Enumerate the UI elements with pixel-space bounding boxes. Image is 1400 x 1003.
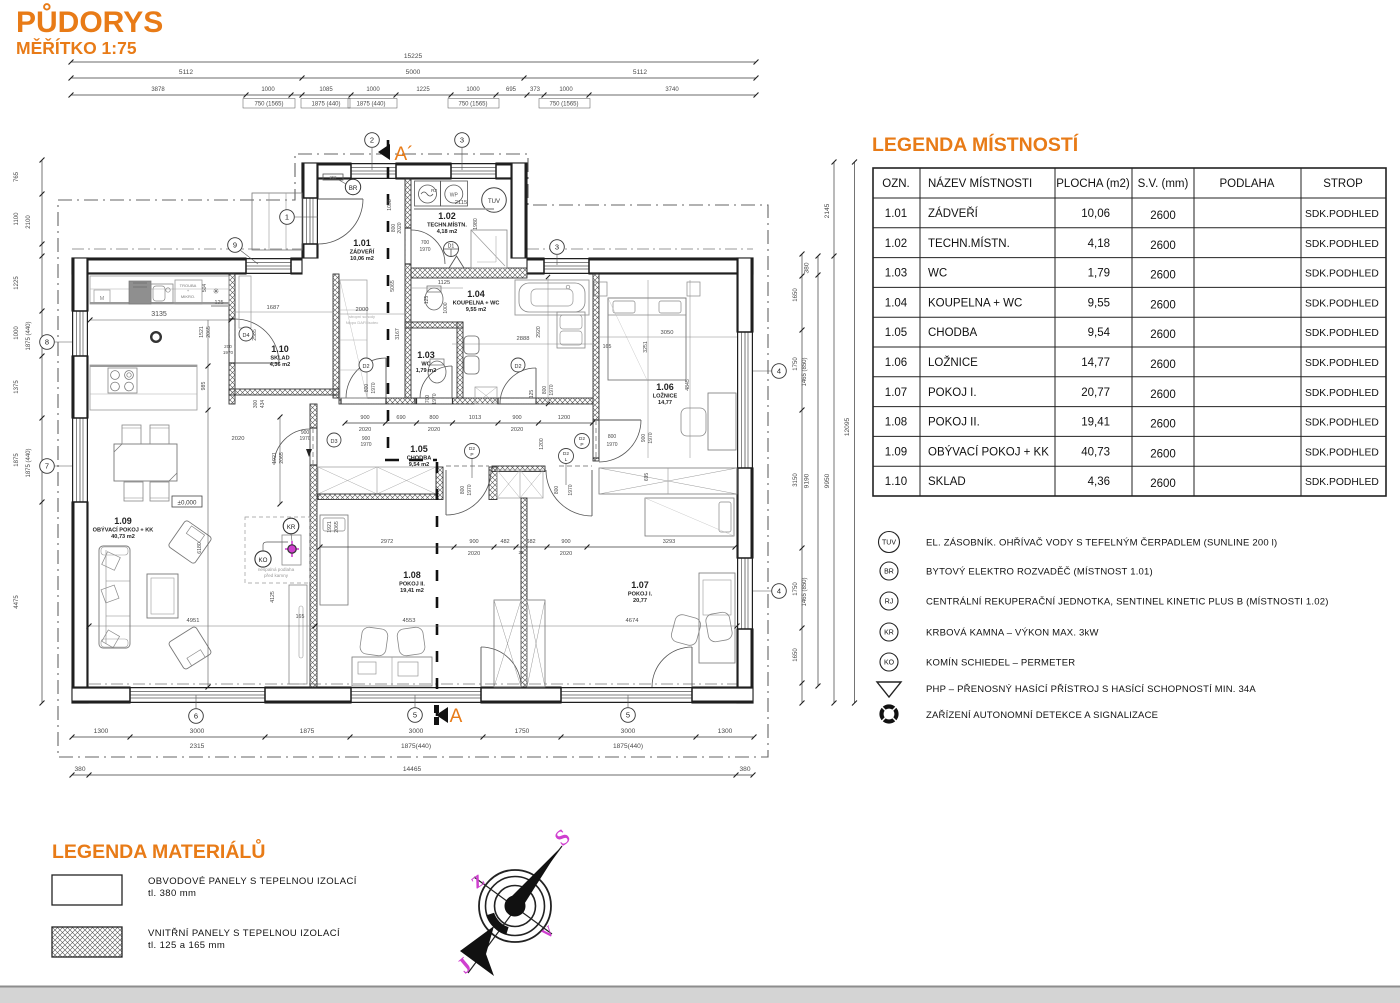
svg-text:PLOCHA (m2): PLOCHA (m2) [1056, 178, 1130, 190]
svg-text:1.10: 1.10 [271, 344, 289, 354]
svg-text:tl. 380 mm: tl. 380 mm [148, 888, 196, 899]
svg-text:SDK.PODHLED: SDK.PODHLED [1305, 328, 1379, 339]
svg-text:19,41 m2: 19,41 m2 [400, 588, 424, 594]
svg-text:3: 3 [460, 136, 464, 145]
svg-text:SDK.PODHLED: SDK.PODHLED [1305, 388, 1379, 399]
svg-text:800: 800 [460, 486, 466, 495]
svg-text:1000: 1000 [366, 87, 380, 93]
svg-text:1.05: 1.05 [410, 444, 428, 454]
svg-text:PŮDORYS: PŮDORYS [16, 3, 163, 39]
svg-text:1465 (850): 1465 (850) [802, 577, 808, 606]
svg-text:5065: 5065 [390, 280, 396, 292]
svg-text:800: 800 [429, 415, 438, 421]
svg-text:4: 4 [777, 587, 781, 596]
svg-text:2600: 2600 [1150, 240, 1176, 252]
svg-text:1970: 1970 [549, 384, 555, 395]
svg-text:9190: 9190 [804, 473, 811, 488]
svg-text:125: 125 [529, 390, 535, 399]
svg-text:2145: 2145 [824, 203, 831, 218]
svg-text:1465 (850): 1465 (850) [802, 357, 808, 386]
svg-text:6: 6 [194, 712, 198, 721]
svg-text:19,41: 19,41 [1081, 417, 1110, 429]
svg-text:✳: ✳ [213, 287, 220, 296]
svg-text:2020: 2020 [232, 436, 245, 442]
svg-text:1300: 1300 [718, 728, 733, 735]
svg-text:4,36 m2: 4,36 m2 [270, 362, 291, 368]
svg-text:NÁZEV MÍSTNOSTI: NÁZEV MÍSTNOSTI [928, 177, 1032, 190]
svg-text:KO: KO [259, 557, 268, 564]
svg-text:1,79: 1,79 [1088, 268, 1110, 280]
svg-text:před kamny: před kamny [264, 573, 289, 578]
svg-text:1750: 1750 [793, 582, 799, 596]
svg-text:L: L [565, 457, 568, 463]
svg-text:700: 700 [421, 240, 430, 246]
svg-text:1125: 1125 [438, 280, 450, 286]
svg-text:4,36: 4,36 [1088, 476, 1110, 488]
svg-text:ZÁDVEŘÍ: ZÁDVEŘÍ [928, 207, 979, 220]
svg-text:1.06: 1.06 [656, 382, 674, 392]
svg-text:9950: 9950 [824, 473, 831, 488]
svg-text:1: 1 [285, 213, 289, 222]
svg-text:D3: D3 [330, 439, 337, 445]
svg-text:1000: 1000 [559, 87, 573, 93]
svg-text:MĚŘÍTKO 1:75: MĚŘÍTKO 1:75 [16, 37, 137, 58]
svg-text:2115: 2115 [455, 200, 467, 206]
svg-text:1375: 1375 [14, 380, 20, 394]
svg-text:LOŽNICE: LOŽNICE [653, 392, 678, 400]
svg-text:10,06 m2: 10,06 m2 [350, 256, 374, 262]
svg-text:165: 165 [296, 614, 305, 620]
svg-text:2920: 2920 [536, 326, 542, 338]
svg-text:800: 800 [364, 384, 370, 393]
svg-text:KOUPELNA + WC: KOUPELNA + WC [928, 297, 1022, 309]
svg-text:2600: 2600 [1150, 448, 1176, 460]
svg-text:4: 4 [777, 367, 781, 376]
svg-text:RJ: RJ [885, 599, 894, 606]
svg-text:682: 682 [526, 539, 535, 545]
svg-text:STROP: STROP [1323, 178, 1363, 190]
svg-text:9: 9 [233, 241, 237, 250]
svg-text:A´: A´ [395, 144, 414, 165]
svg-text:900: 900 [561, 539, 570, 545]
svg-text:1970: 1970 [467, 484, 473, 495]
svg-text:10,06: 10,06 [1081, 208, 1110, 220]
svg-text:25: 25 [518, 550, 524, 555]
svg-text:1970: 1970 [360, 442, 371, 448]
svg-text:1875 (440): 1875 (440) [356, 102, 385, 108]
svg-text:1970: 1970 [648, 432, 654, 443]
svg-text:POKOJ I.: POKOJ I. [928, 387, 977, 399]
svg-text:S.V. (mm): S.V. (mm) [1138, 178, 1189, 190]
svg-text:TECHN.MÍSTN.: TECHN.MÍSTN. [427, 221, 467, 229]
svg-text:9,54: 9,54 [1088, 327, 1111, 339]
svg-text:1225: 1225 [14, 276, 20, 290]
svg-text:2600: 2600 [1150, 270, 1176, 282]
svg-text:1.03: 1.03 [885, 268, 907, 280]
svg-text:2600: 2600 [1150, 299, 1176, 311]
svg-text:CHODBA: CHODBA [407, 456, 432, 462]
svg-text:SKLAD: SKLAD [928, 476, 966, 488]
svg-text:2600: 2600 [1150, 389, 1176, 401]
svg-text:2000: 2000 [356, 307, 369, 313]
svg-text:14,77: 14,77 [658, 400, 672, 406]
svg-text:BYTOVÝ ELEKTRO ROZVADĚČ (MÍSTN: BYTOVÝ ELEKTRO ROZVADĚČ (MÍSTNOST 1.01) [926, 567, 1153, 578]
svg-text:690: 690 [396, 415, 405, 421]
svg-text:1100: 1100 [14, 212, 20, 226]
svg-text:1970: 1970 [371, 382, 377, 393]
svg-text:1875 (440): 1875 (440) [26, 321, 32, 350]
svg-text:380: 380 [804, 262, 811, 273]
svg-text:1200: 1200 [558, 415, 570, 421]
svg-text:3150: 3150 [793, 473, 799, 487]
svg-text:1.02: 1.02 [885, 238, 907, 250]
svg-text:CENTRÁLNÍ REKUPERAČNÍ JEDNOTKA: CENTRÁLNÍ REKUPERAČNÍ JEDNOTKA, SENTINEL… [926, 597, 1329, 608]
svg-text:5000: 5000 [406, 69, 421, 76]
svg-text:ZÁDVEŘÍ: ZÁDVEŘÍ [350, 248, 375, 256]
svg-text:1970: 1970 [223, 350, 234, 355]
svg-text:TUV: TUV [882, 540, 896, 547]
svg-text:3135: 3135 [151, 311, 167, 318]
svg-text:380: 380 [739, 766, 750, 773]
svg-text:D2: D2 [579, 436, 585, 442]
svg-text:1875(440): 1875(440) [401, 743, 431, 750]
svg-text:2065: 2065 [334, 521, 340, 533]
svg-text:165: 165 [603, 344, 612, 350]
svg-text:2020: 2020 [468, 551, 480, 557]
svg-text:1.09: 1.09 [114, 516, 132, 526]
svg-text:WC: WC [928, 268, 947, 280]
svg-text:2600: 2600 [1150, 359, 1176, 371]
svg-text:250: 250 [330, 175, 338, 180]
svg-text:1013: 1013 [469, 415, 481, 421]
svg-text:2020: 2020 [511, 427, 523, 433]
svg-text:14,77: 14,77 [1081, 357, 1110, 369]
svg-text:750 (1565): 750 (1565) [254, 102, 283, 108]
svg-text:4553: 4553 [403, 618, 416, 624]
svg-text:15225: 15225 [404, 53, 423, 60]
svg-text:OZN.: OZN. [882, 178, 909, 190]
svg-text:20,77: 20,77 [633, 598, 647, 604]
svg-text:1085: 1085 [319, 87, 333, 93]
svg-text:1970: 1970 [299, 436, 310, 442]
svg-text:373: 373 [530, 87, 541, 93]
svg-text:2065: 2065 [279, 452, 285, 464]
svg-text:1098: 1098 [387, 199, 393, 211]
svg-text:1970: 1970 [432, 393, 438, 404]
svg-text:OBÝVACÍ POKOJ + KK: OBÝVACÍ POKOJ + KK [928, 445, 1049, 458]
svg-text:1650: 1650 [793, 288, 799, 302]
svg-text:CHODBA: CHODBA [928, 327, 978, 339]
svg-text:2020: 2020 [397, 222, 403, 233]
svg-text:3293: 3293 [663, 539, 675, 545]
svg-text:KRBOVÁ KAMNA – VÝKON MAX. 3kW: KRBOVÁ KAMNA – VÝKON MAX. 3kW [926, 628, 1099, 639]
svg-text:1.08: 1.08 [885, 417, 907, 429]
svg-text:2065: 2065 [206, 326, 212, 338]
svg-text:695: 695 [644, 473, 650, 482]
svg-text:4475: 4475 [14, 595, 20, 609]
svg-text:SDK.PODHLED: SDK.PODHLED [1305, 477, 1379, 488]
svg-text:1.09: 1.09 [885, 446, 907, 458]
svg-text:900: 900 [469, 539, 478, 545]
svg-text:OBÝVACÍ POKOJ + KK: OBÝVACÍ POKOJ + KK [93, 526, 154, 534]
svg-text:P: P [580, 442, 583, 448]
svg-text:D1: D1 [448, 244, 455, 250]
svg-text:POKOJ II.: POKOJ II. [399, 582, 425, 588]
svg-text:482: 482 [500, 539, 509, 545]
svg-text:3000: 3000 [409, 728, 424, 735]
svg-text:KR: KR [884, 630, 894, 637]
svg-text:1875(440): 1875(440) [613, 743, 643, 750]
svg-text:1.04: 1.04 [467, 289, 485, 299]
svg-text:RJ: RJ [431, 188, 437, 194]
svg-text:695: 695 [506, 87, 517, 93]
svg-text:1300: 1300 [94, 728, 109, 735]
svg-text:40,73: 40,73 [1081, 446, 1110, 458]
svg-text:434: 434 [260, 400, 266, 409]
svg-text:800: 800 [608, 434, 617, 440]
svg-text:TUV: TUV [488, 199, 500, 205]
svg-text:1.06: 1.06 [885, 357, 907, 369]
svg-text:2600: 2600 [1150, 329, 1176, 341]
svg-text:WP: WP [450, 193, 459, 199]
svg-text:1000: 1000 [466, 87, 480, 93]
svg-text:504: 504 [202, 284, 208, 293]
svg-text:1921: 1921 [327, 521, 333, 533]
svg-text:KOMÍN SCHIEDEL – PERMETER: KOMÍN SCHIEDEL – PERMETER [926, 658, 1075, 669]
svg-text:POKOJ II.: POKOJ II. [928, 417, 980, 429]
svg-text:750 (1565): 750 (1565) [458, 102, 487, 108]
svg-text:1.07: 1.07 [885, 387, 907, 399]
svg-text:stropní schody: stropní schody [349, 314, 375, 319]
svg-text:5: 5 [626, 711, 630, 720]
svg-text:1650: 1650 [793, 648, 799, 662]
svg-text:D2: D2 [362, 364, 369, 370]
svg-text:1200: 1200 [539, 438, 545, 450]
svg-text:SDK.PODHLED: SDK.PODHLED [1305, 269, 1379, 280]
svg-text:nespalná podlaha: nespalná podlaha [258, 567, 295, 572]
svg-text:3050: 3050 [661, 330, 674, 336]
svg-text:1000: 1000 [443, 302, 449, 313]
svg-text:LEGENDA MATERIÁLŮ: LEGENDA MATERIÁLŮ [52, 837, 265, 863]
svg-text:2100: 2100 [26, 215, 32, 229]
svg-text:8: 8 [45, 338, 49, 347]
svg-text:5: 5 [413, 711, 417, 720]
svg-text:SDK.PODHLED: SDK.PODHLED [1305, 418, 1379, 429]
svg-text:KOUPELNA + WC: KOUPELNA + WC [453, 301, 500, 307]
svg-text:5112: 5112 [179, 69, 194, 76]
svg-text:9,54 m2: 9,54 m2 [409, 462, 430, 468]
svg-text:P: P [470, 452, 473, 458]
svg-text:1980: 1980 [473, 218, 479, 230]
svg-text:3167: 3167 [395, 328, 401, 340]
svg-text:700: 700 [425, 395, 431, 404]
svg-text:2600: 2600 [1150, 210, 1176, 222]
svg-text:SDK.PODHLED: SDK.PODHLED [1305, 239, 1379, 250]
svg-text:900: 900 [641, 434, 647, 443]
svg-text:1875: 1875 [300, 728, 315, 735]
svg-text:1000: 1000 [14, 326, 20, 340]
svg-text:765: 765 [14, 171, 20, 182]
svg-text:125: 125 [424, 296, 430, 305]
svg-text:1.02: 1.02 [438, 211, 456, 221]
svg-text:PHP – PŘENOSNÝ HASÍCÍ PŘÍSTROJ: PHP – PŘENOSNÝ HASÍCÍ PŘÍSTROJ S HASÍCÍ … [926, 684, 1256, 695]
svg-text:6180: 6180 [197, 542, 203, 554]
svg-text:12095: 12095 [844, 418, 851, 437]
svg-text:LOŽNICE: LOŽNICE [928, 356, 978, 369]
svg-text:1.04: 1.04 [885, 297, 908, 309]
svg-text:KR: KR [287, 524, 296, 531]
svg-text:1.10: 1.10 [885, 476, 907, 488]
svg-text:A: A [450, 706, 463, 727]
svg-text:VNITŘNÍ PANELY S TEPELNOU IZOL: VNITŘNÍ PANELY S TEPELNOU IZOLACÍ [148, 928, 340, 939]
svg-text:4,18: 4,18 [1088, 238, 1110, 250]
svg-text:2600: 2600 [1150, 478, 1176, 490]
svg-text:985: 985 [201, 382, 207, 391]
svg-text:4951: 4951 [187, 618, 200, 624]
svg-text:1875: 1875 [14, 453, 20, 467]
svg-text:1750: 1750 [793, 357, 799, 371]
svg-text:M: M [100, 296, 105, 302]
svg-text:D2: D2 [514, 364, 521, 370]
svg-text:3000: 3000 [621, 728, 636, 735]
svg-text:4674: 4674 [626, 618, 640, 624]
svg-text:1225: 1225 [416, 87, 430, 93]
svg-text:D4: D4 [242, 333, 249, 339]
svg-text:300: 300 [253, 400, 259, 409]
svg-text:1521: 1521 [199, 326, 205, 338]
svg-text:2020: 2020 [428, 427, 440, 433]
svg-text:D2: D2 [563, 451, 569, 457]
svg-text:EL. ZÁSOBNÍK. OHŘÍVAČ VODY S T: EL. ZÁSOBNÍK. OHŘÍVAČ VODY S TEFELNÝM ČE… [926, 538, 1277, 549]
svg-text:750 (1565): 750 (1565) [549, 102, 578, 108]
svg-text:LEGENDA MÍSTNOSTÍ: LEGENDA MÍSTNOSTÍ [872, 133, 1079, 156]
svg-text:14465: 14465 [403, 766, 422, 773]
svg-text:SDK.PODHLED: SDK.PODHLED [1305, 447, 1379, 458]
svg-text:MIKRO.: MIKRO. [181, 294, 195, 299]
svg-text:1875 (440): 1875 (440) [311, 102, 340, 108]
svg-text:1.01: 1.01 [353, 238, 371, 248]
svg-text:125: 125 [215, 300, 224, 306]
svg-text:SDK.PODHLED: SDK.PODHLED [1305, 358, 1379, 369]
svg-text:380: 380 [74, 766, 85, 773]
svg-text:800: 800 [554, 486, 560, 495]
svg-text:1970: 1970 [606, 442, 617, 448]
svg-text:900: 900 [512, 415, 521, 421]
svg-text:1687: 1687 [267, 305, 280, 311]
svg-text:SDK.PODHLED: SDK.PODHLED [1305, 209, 1379, 220]
svg-text:tl. 125 a 165 mm: tl. 125 a 165 mm [148, 940, 225, 951]
svg-text:3740: 3740 [665, 87, 679, 93]
svg-text:40,73 m2: 40,73 m2 [111, 534, 135, 540]
svg-text:1,79 m2: 1,79 m2 [416, 368, 437, 374]
svg-text:SKLAD: SKLAD [270, 356, 289, 362]
svg-text:3878: 3878 [151, 87, 165, 93]
svg-text:2600: 2600 [1150, 419, 1176, 431]
svg-text:OBVODOVÉ PANELY S TEPELNOU IZO: OBVODOVÉ PANELY S TEPELNOU IZOLACÍ [148, 876, 357, 887]
svg-text:2315: 2315 [190, 743, 205, 750]
svg-text:1.05: 1.05 [885, 327, 907, 339]
svg-text:7: 7 [45, 462, 49, 471]
svg-text:POKOJ I.: POKOJ I. [628, 592, 653, 598]
svg-text:2972: 2972 [381, 539, 393, 545]
svg-text:ZAŘÍZENÍ AUTONOMNÍ DETEKCE A S: ZAŘÍZENÍ AUTONOMNÍ DETEKCE A SIGNALIZACE [926, 710, 1158, 721]
svg-text:20,77: 20,77 [1081, 387, 1110, 399]
svg-text:5112: 5112 [633, 69, 648, 76]
svg-text:1000: 1000 [261, 87, 275, 93]
svg-text:1.03: 1.03 [417, 350, 435, 360]
svg-text:1970: 1970 [568, 484, 574, 495]
svg-text:1.01: 1.01 [885, 208, 907, 220]
svg-text:3000: 3000 [190, 728, 205, 735]
svg-text:D2: D2 [469, 446, 475, 452]
svg-text:9,55: 9,55 [1088, 297, 1110, 309]
svg-text:800: 800 [542, 386, 548, 395]
svg-text:1.08: 1.08 [403, 570, 421, 580]
svg-text:BR: BR [349, 185, 358, 192]
svg-text:1970: 1970 [419, 247, 430, 253]
svg-text:±0,000: ±0,000 [178, 500, 197, 507]
svg-text:1.07: 1.07 [631, 580, 649, 590]
svg-text:3: 3 [555, 243, 559, 252]
svg-text:Nippo DAFI Isotec: Nippo DAFI Isotec [346, 320, 378, 325]
svg-text:1750: 1750 [515, 728, 530, 735]
svg-text:4,18 m2: 4,18 m2 [437, 229, 458, 235]
svg-text:900: 900 [360, 415, 369, 421]
svg-text:1921: 1921 [272, 452, 278, 464]
svg-text:PODLAHA: PODLAHA [1220, 178, 1275, 190]
svg-text:SDK.PODHLED: SDK.PODHLED [1305, 298, 1379, 309]
svg-text:2: 2 [370, 136, 374, 145]
svg-text:200: 200 [224, 344, 232, 349]
svg-text:BR: BR [884, 569, 894, 576]
svg-text:9,55 m2: 9,55 m2 [466, 307, 487, 313]
svg-text:1875 (440): 1875 (440) [26, 448, 32, 477]
svg-text:2888: 2888 [517, 336, 530, 342]
svg-text:2020: 2020 [560, 551, 572, 557]
svg-text:2020: 2020 [359, 427, 371, 433]
svg-text:4125: 4125 [270, 591, 276, 603]
svg-text:KO: KO [884, 660, 895, 667]
svg-text:TECHN.MÍSTN.: TECHN.MÍSTN. [928, 237, 1010, 250]
